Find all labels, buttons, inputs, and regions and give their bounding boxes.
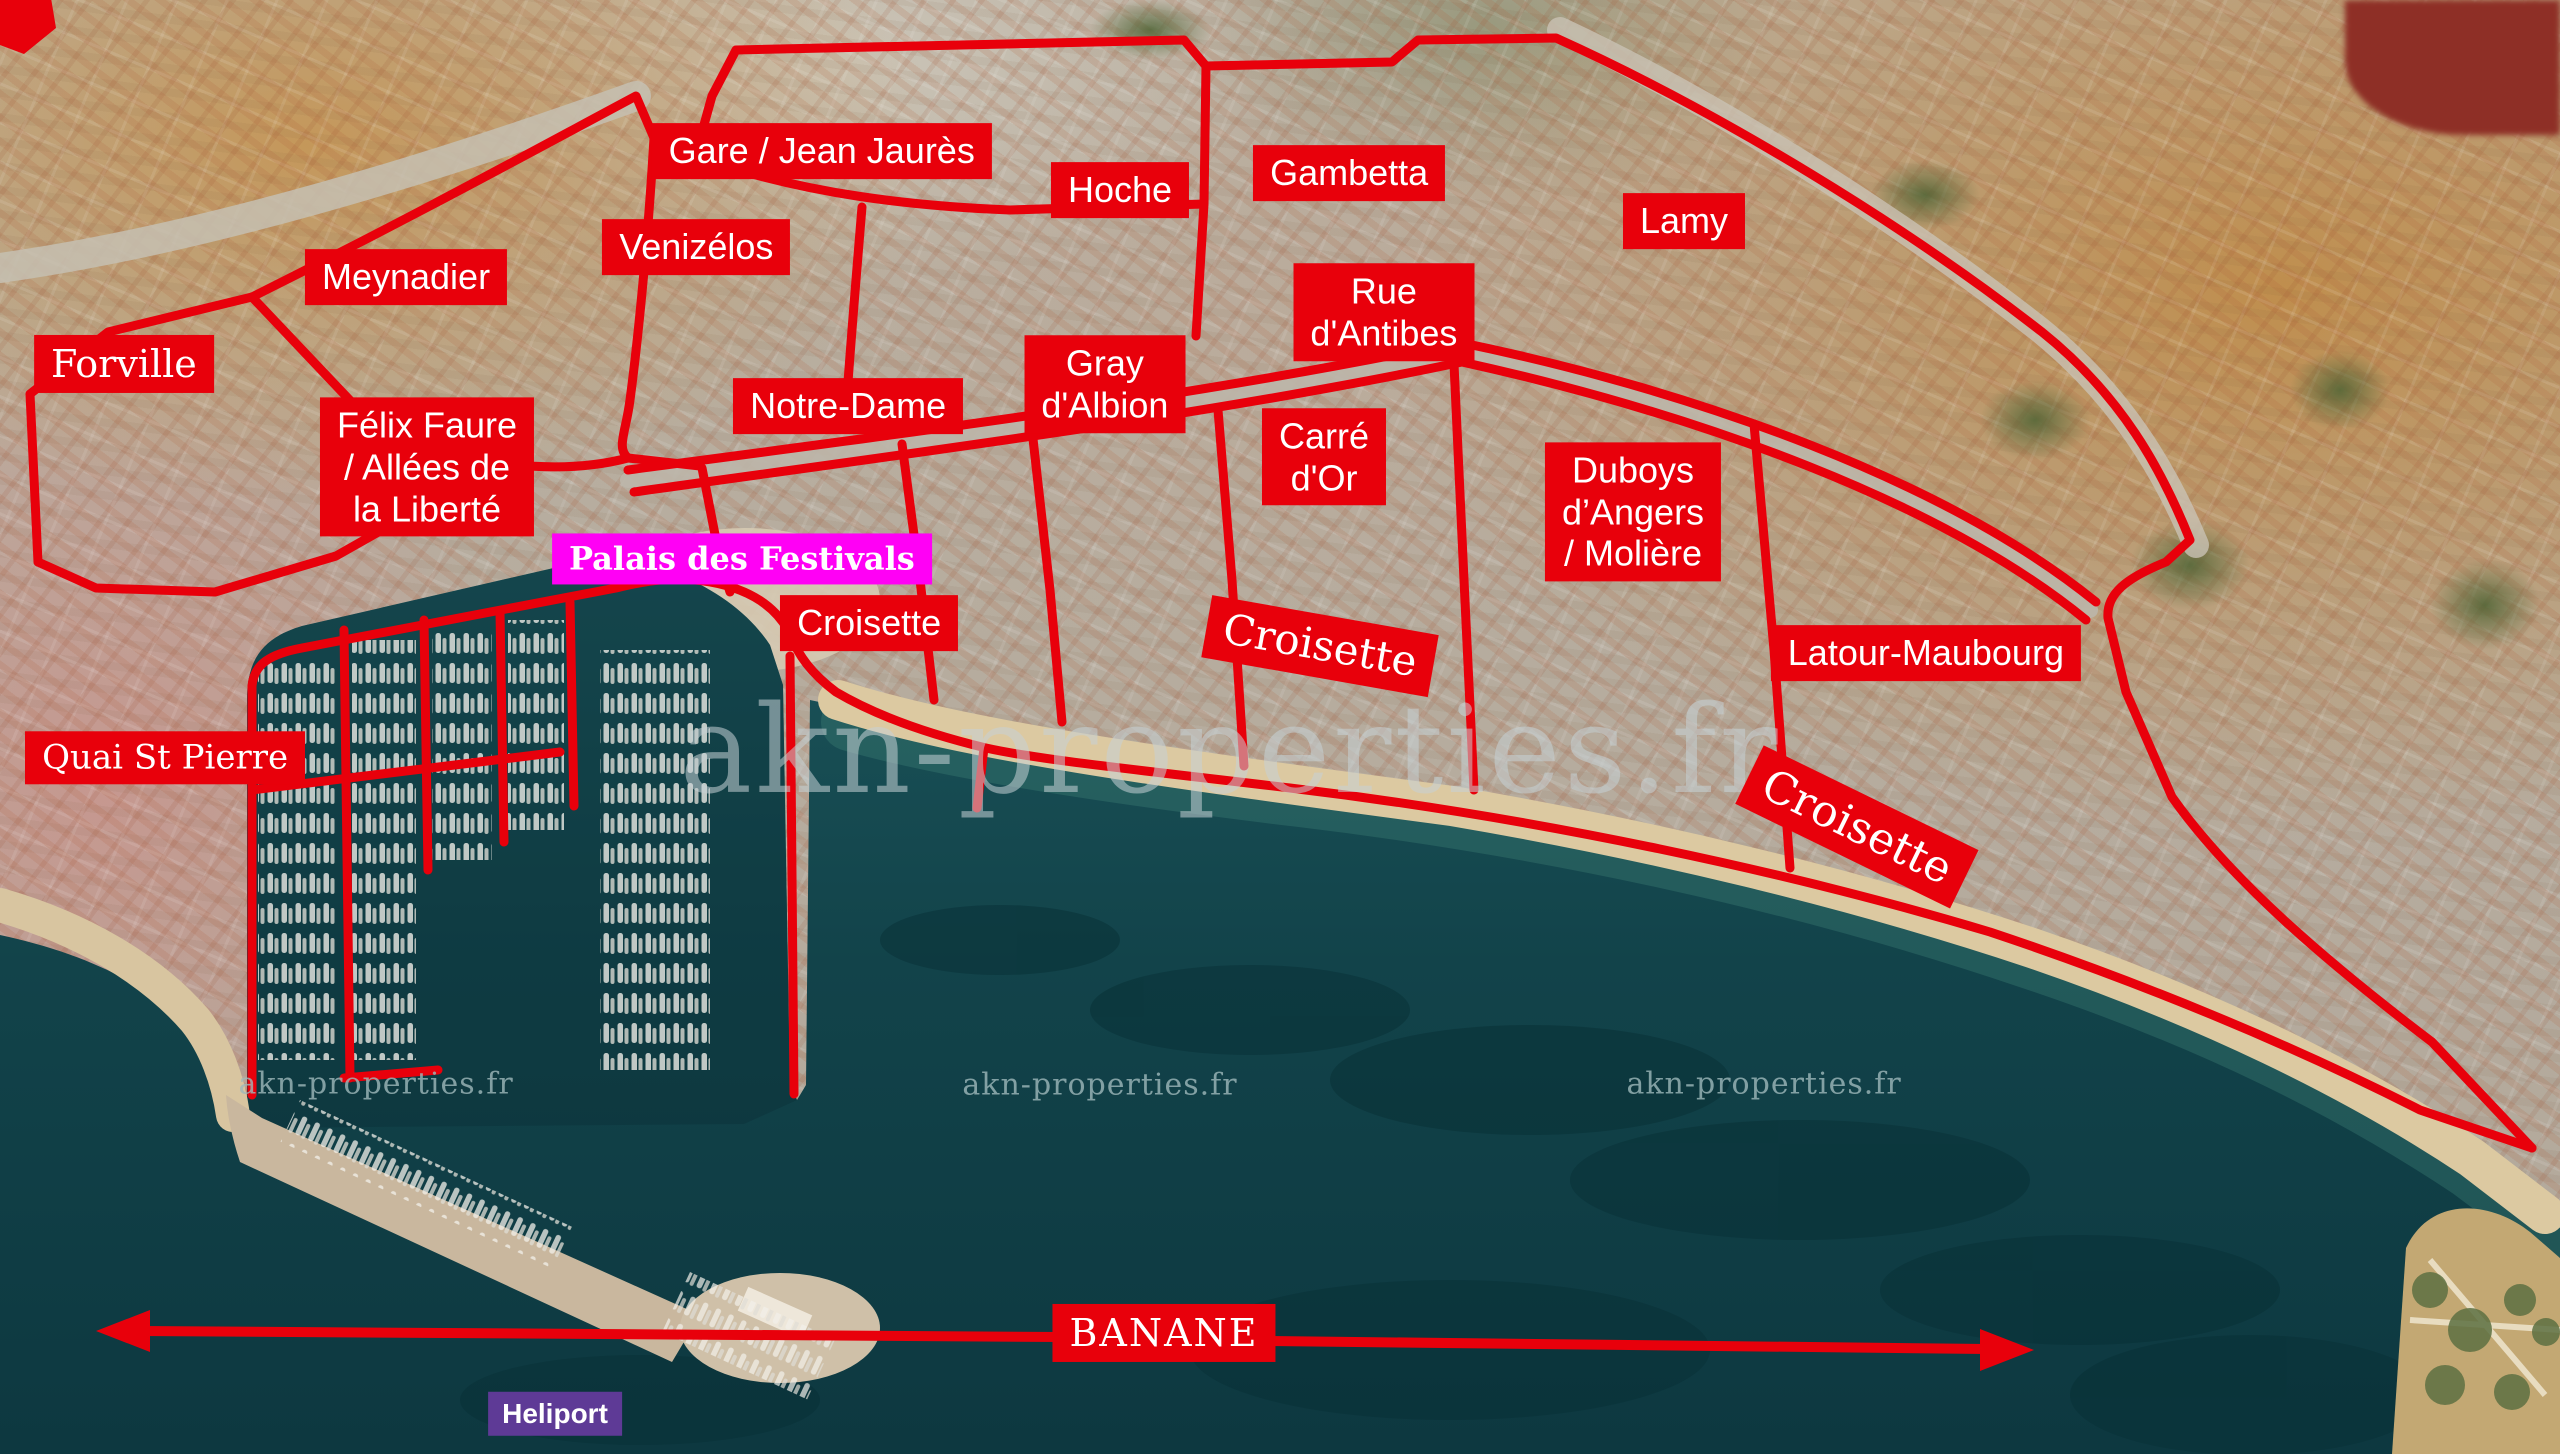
poi-label-palais-des-festivals: Palais des Festivals <box>552 534 932 585</box>
district-label-carre-dor: Carré d'Or <box>1262 408 1386 506</box>
district-label-gambetta: Gambetta <box>1253 145 1445 201</box>
cannes-districts-map: akn-properties.fr akn-properties.fr akn-… <box>0 0 2560 1454</box>
district-label-felix-faure: Félix Faure / Allées de la Liberté <box>320 397 534 536</box>
district-label-croisette: Croisette <box>780 595 958 651</box>
watermark-small-right: akn-properties.fr <box>1626 1066 1901 1101</box>
district-label-latour-maubourg: Latour-Maubourg <box>1771 625 2081 681</box>
poi-label-heliport: Heliport <box>488 1392 622 1436</box>
district-label-rue-dantibes: Rue d'Antibes <box>1293 263 1474 361</box>
district-label-meynadier: Meynadier <box>305 249 507 305</box>
district-label-gare-jean-jaures: Gare / Jean Jaurès <box>652 123 992 179</box>
district-label-hoche: Hoche <box>1051 162 1189 218</box>
watermark-large: akn-properties.fr <box>680 679 1781 821</box>
district-label-lamy: Lamy <box>1623 193 1745 249</box>
street-label-quai-st-pierre: Quai St Pierre <box>25 731 305 784</box>
district-label-forville: Forville <box>34 334 214 392</box>
watermark-small-center: akn-properties.fr <box>962 1067 1237 1102</box>
district-label-duboys-moliere: Duboys d’Angers / Molière <box>1545 442 1721 581</box>
beach-label-banane: BANANE <box>1053 1304 1276 1362</box>
garden-point-croisette <box>2392 1208 2560 1454</box>
district-label-venizelos: Venizélos <box>602 219 790 275</box>
district-label-gray-dalbion: Gray d'Albion <box>1024 335 1185 433</box>
district-label-notre-dame: Notre-Dame <box>733 378 963 434</box>
watermark-small-left: akn-properties.fr <box>238 1066 513 1101</box>
